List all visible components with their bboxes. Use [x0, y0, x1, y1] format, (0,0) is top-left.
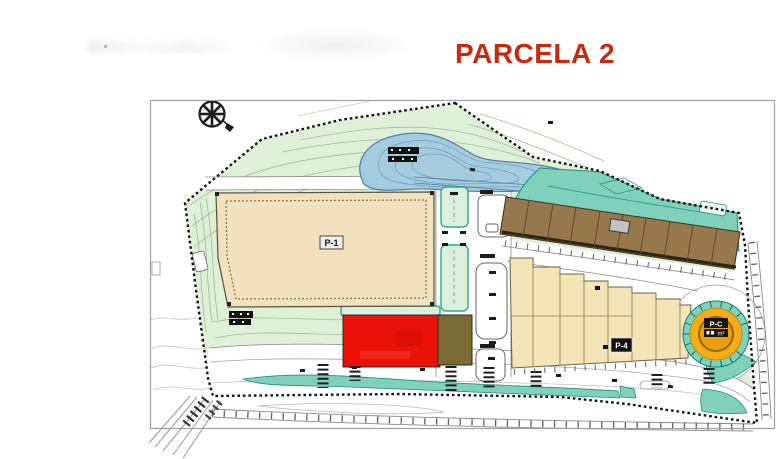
p4-label: P-4: [615, 342, 628, 351]
building-olive-annex: [438, 315, 472, 365]
compass-rose-icon: [200, 102, 235, 133]
pc-area-label: m²: [718, 332, 725, 338]
p1-label: P-1: [324, 238, 338, 248]
site-plan-svg: P-1 P-4 P-C m²: [0, 0, 784, 459]
building-red: [343, 315, 440, 367]
warehouse-roof-label: [609, 219, 630, 234]
west-area-label: [229, 311, 253, 325]
small-structure-outline: [152, 262, 160, 275]
road-exit-southwest: [149, 396, 221, 458]
pc-label: P-C: [710, 320, 724, 329]
site-plan-page: PARCELA 2: [0, 0, 784, 459]
